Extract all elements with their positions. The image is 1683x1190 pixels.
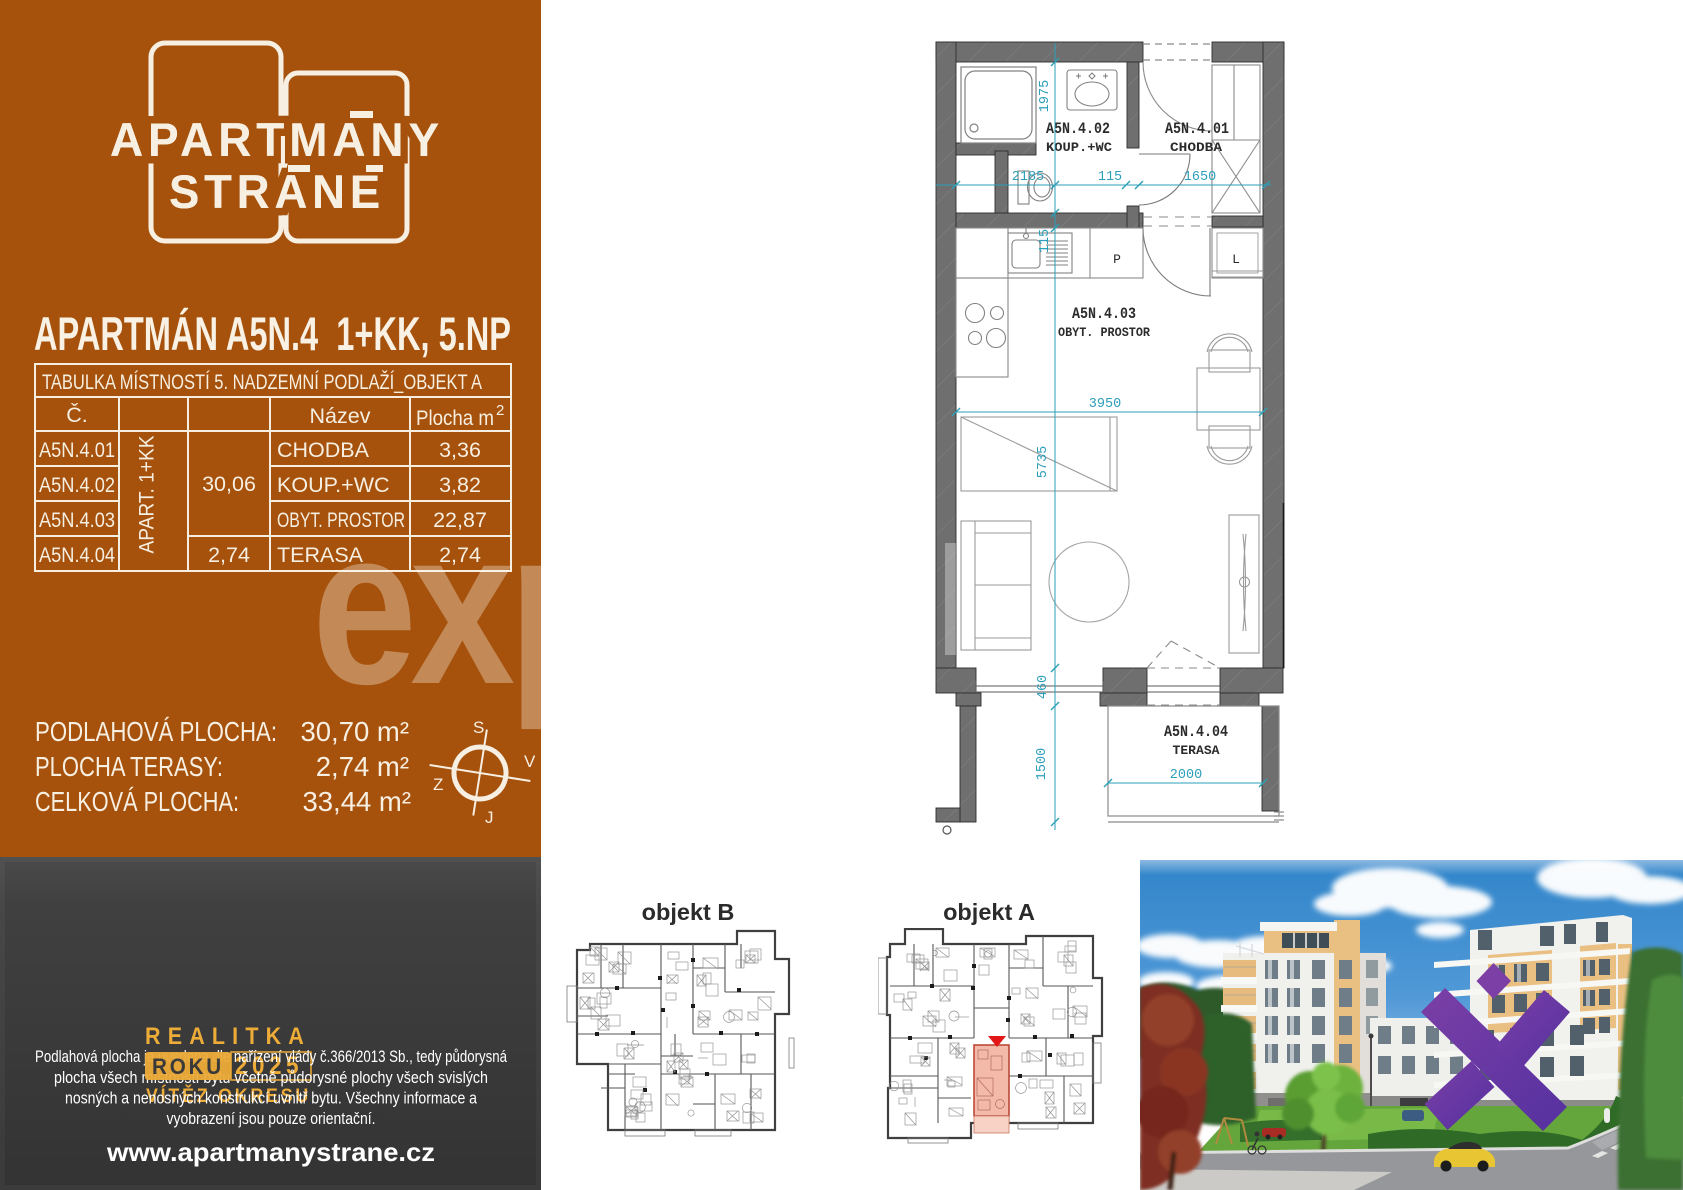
svg-text:exp: exp <box>312 481 541 730</box>
svg-text:115: 115 <box>1098 170 1122 185</box>
svg-text:vyobrazení jsou pouze orientač: vyobrazení jsou pouze orientační. <box>167 1109 376 1128</box>
svg-text:OBYT. PROSTOR: OBYT. PROSTOR <box>1058 325 1150 340</box>
svg-text:A5N.4.03: A5N.4.03 <box>39 508 115 532</box>
svg-text:30,06: 30,06 <box>202 472 256 496</box>
svg-text:APART. 1+KK: APART. 1+KK <box>135 435 159 554</box>
svg-text:3950: 3950 <box>1089 397 1121 412</box>
svg-text:Název: Název <box>310 404 371 428</box>
svg-text:CELKOVÁ PLOCHA:: CELKOVÁ PLOCHA: <box>35 786 239 817</box>
svg-text:3,36: 3,36 <box>439 438 481 462</box>
svg-text:V: V <box>524 752 535 771</box>
svg-text:1975: 1975 <box>1038 80 1053 112</box>
svg-text:115: 115 <box>1038 229 1053 253</box>
svg-text:A5N.4.01: A5N.4.01 <box>1165 120 1229 138</box>
svg-text:CHODBA: CHODBA <box>1170 140 1222 155</box>
svg-text:Plocha m: Plocha m <box>416 406 494 430</box>
svg-text:plocha všech místností bytu vč: plocha všech místností bytu včetně půdor… <box>54 1068 488 1087</box>
svg-text:A5N.4.03: A5N.4.03 <box>1072 305 1136 323</box>
svg-text:A5N.4.04: A5N.4.04 <box>39 543 115 567</box>
svg-text:APARTMÁN A5N.4 1+KK, 5.NP: APARTMÁN A5N.4 1+KK, 5.NP <box>34 307 511 360</box>
svg-text:1650: 1650 <box>1184 170 1216 185</box>
svg-text:A5N.4.01: A5N.4.01 <box>39 438 115 462</box>
svg-text:J: J <box>485 808 494 827</box>
svg-text:2,74 m²: 2,74 m² <box>316 751 409 782</box>
svg-text:5735: 5735 <box>1036 446 1051 478</box>
svg-text:2: 2 <box>496 402 504 419</box>
svg-text:TABULKA MÍSTNOSTÍ 5. NADZEMNÍ: TABULKA MÍSTNOSTÍ 5. NADZEMNÍ PODLAŽÍ_OB… <box>42 369 483 394</box>
svg-text:Č.: Č. <box>66 402 88 427</box>
svg-text:S: S <box>473 718 484 737</box>
svg-text:A5N.4.02: A5N.4.02 <box>1046 120 1110 138</box>
svg-text:www.apartmanystrane.cz: www.apartmanystrane.cz <box>106 1137 435 1167</box>
svg-text:KOUP.+WC: KOUP.+WC <box>1046 140 1112 155</box>
svg-text:TERASA: TERASA <box>1173 743 1220 758</box>
svg-text:nosných a nenosných konstrukcí: nosných a nenosných konstrukcí uvnitř by… <box>65 1089 477 1108</box>
svg-text:1500: 1500 <box>1035 748 1050 780</box>
svg-text:Z: Z <box>433 775 443 794</box>
svg-text:2,74: 2,74 <box>208 543 250 567</box>
svg-text:P: P <box>1113 252 1121 267</box>
svg-text:PLOCHA TERASY:: PLOCHA TERASY: <box>35 751 223 782</box>
svg-text:2185: 2185 <box>1012 170 1044 185</box>
svg-text:L: L <box>1232 252 1240 267</box>
svg-text:CHODBA: CHODBA <box>277 438 370 462</box>
svg-text:REALITKA: REALITKA <box>145 1023 311 1050</box>
svg-text:460: 460 <box>1036 675 1051 699</box>
svg-text:A5N.4.02: A5N.4.02 <box>39 473 115 497</box>
svg-text:A5N.4.04: A5N.4.04 <box>1164 723 1228 741</box>
svg-text:2000: 2000 <box>1170 768 1202 783</box>
svg-text:Podlahová plocha je uvedena dl: Podlahová plocha je uvedena dle nařízení… <box>35 1047 507 1066</box>
svg-text:ROKU: ROKU <box>152 1054 224 1079</box>
svg-text:33,44 m²: 33,44 m² <box>302 786 411 817</box>
svg-text:PODLAHOVÁ PLOCHA:: PODLAHOVÁ PLOCHA: <box>35 716 277 747</box>
